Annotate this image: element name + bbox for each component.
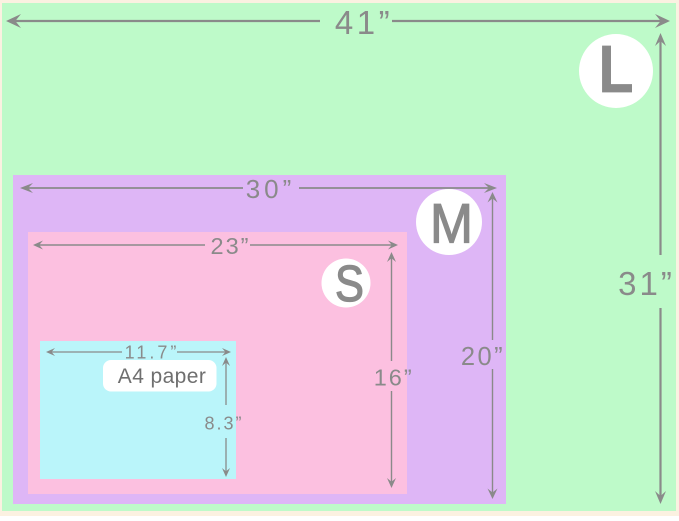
svg-text:S: S [335,256,364,313]
svg-text:20”: 20” [461,343,505,371]
svg-text:8.3”: 8.3” [204,414,243,434]
svg-text:L: L [599,33,634,107]
svg-text:M: M [430,193,473,255]
svg-text:31”: 31” [618,265,675,302]
svg-text:16”: 16” [374,365,414,391]
svg-text:30”: 30” [246,174,296,204]
svg-text:41”: 41” [335,4,393,41]
svg-text:11.7”: 11.7” [125,343,180,363]
svg-text:23”: 23” [211,233,251,259]
svg-text:A4 paper: A4 paper [118,365,206,388]
